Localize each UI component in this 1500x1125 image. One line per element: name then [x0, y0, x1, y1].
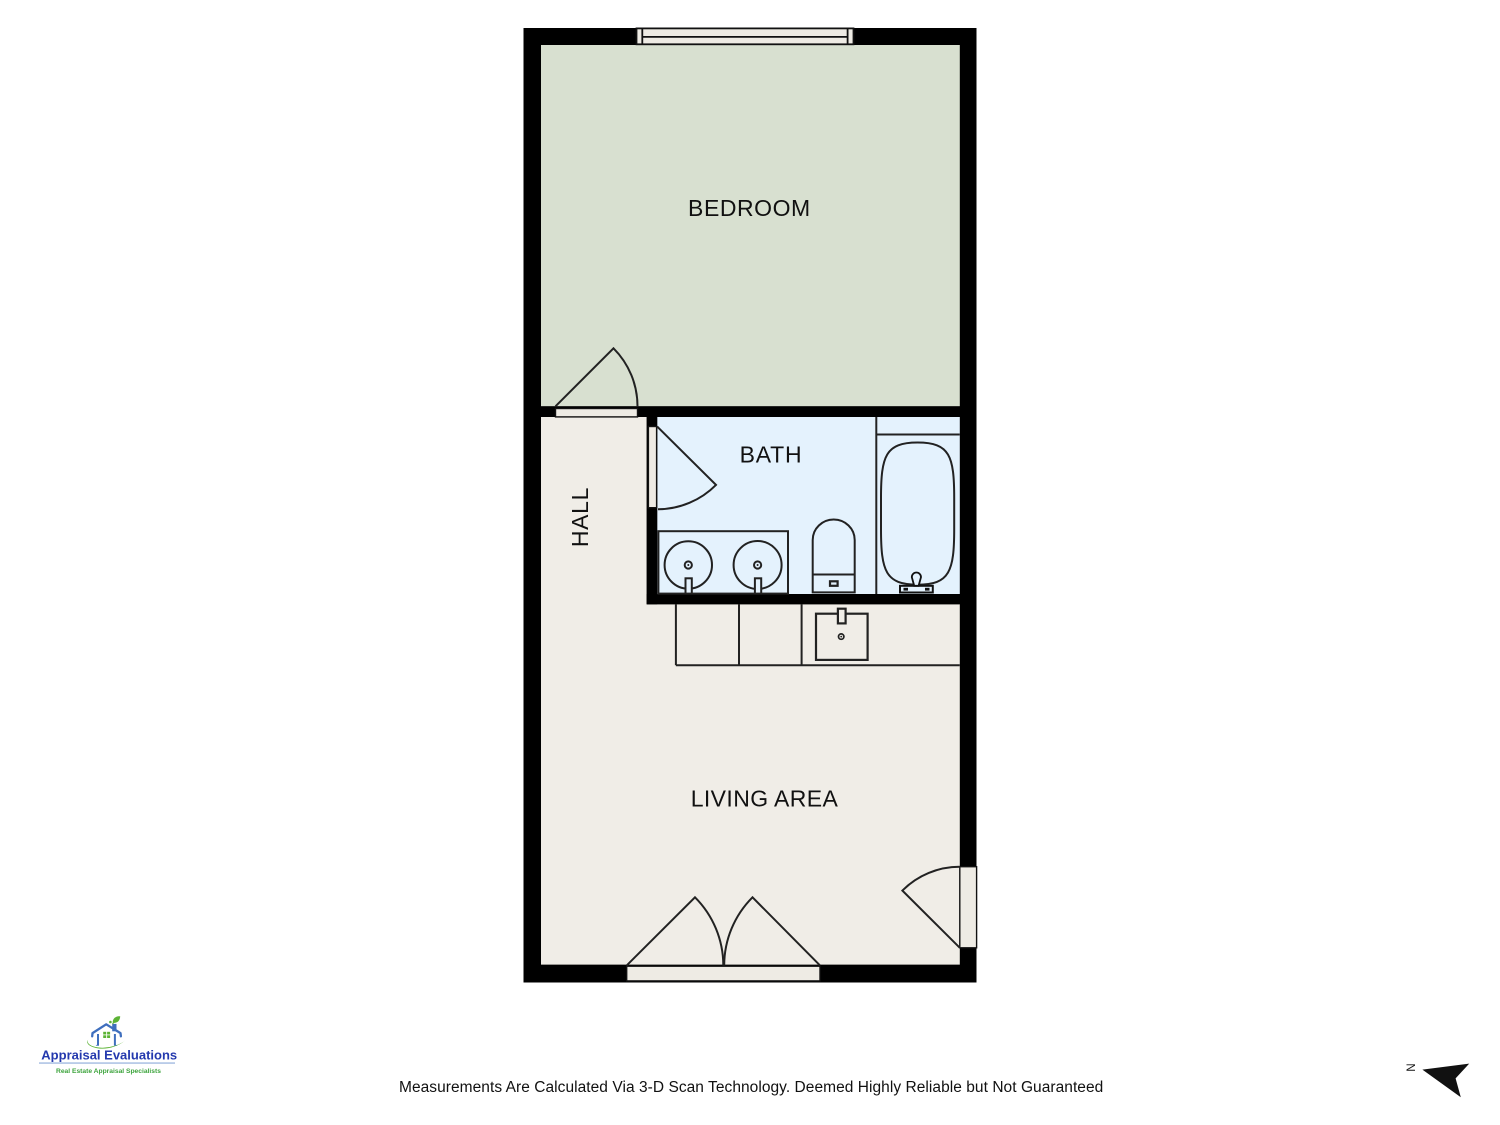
- svg-text:BEDROOM: BEDROOM: [688, 195, 811, 221]
- svg-text:BATH: BATH: [740, 442, 803, 468]
- svg-text:Appraisal Evaluations: Appraisal Evaluations: [41, 1048, 177, 1063]
- svg-text:Real Estate Appraisal Speciali: Real Estate Appraisal Specialists: [56, 1068, 161, 1075]
- svg-text:LIVING AREA: LIVING AREA: [691, 786, 839, 812]
- svg-text:HALL: HALL: [567, 487, 593, 547]
- svg-text:Measurements Are Calculated Vi: Measurements Are Calculated Via 3-D Scan…: [399, 1079, 1103, 1096]
- svg-text:N: N: [1403, 1063, 1415, 1071]
